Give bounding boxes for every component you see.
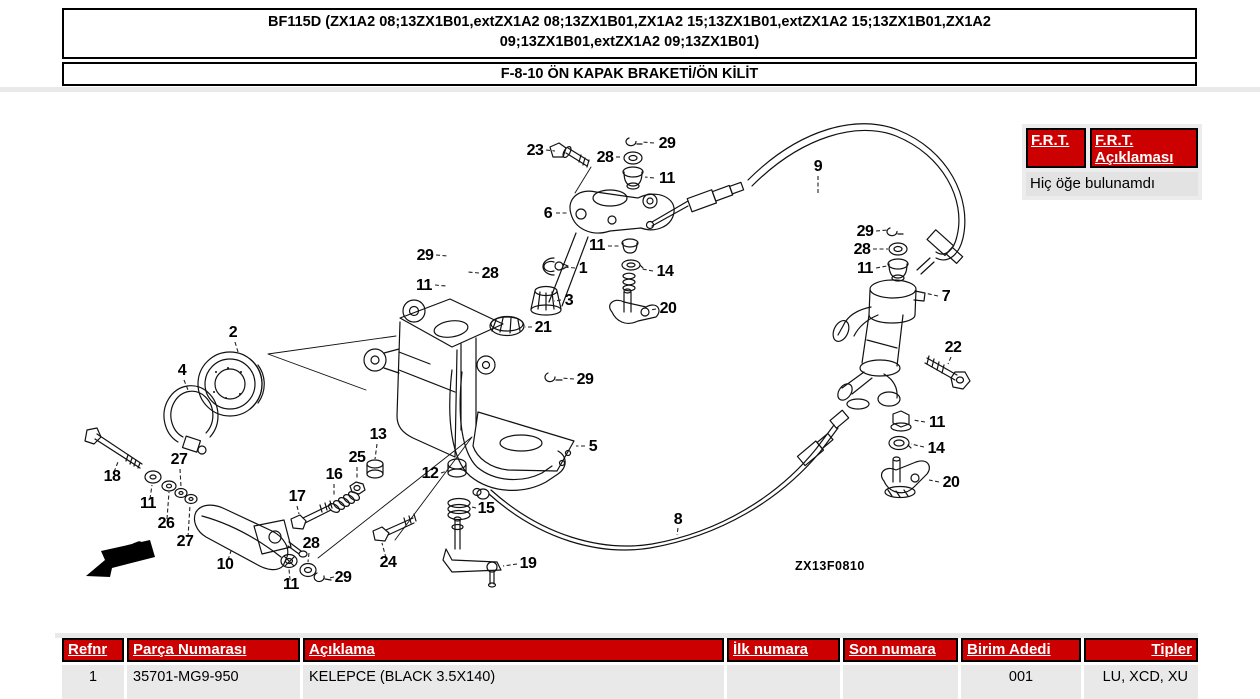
washer-28-right <box>889 243 907 255</box>
part-label-29: 29 <box>659 135 676 152</box>
part-label-29: 29 <box>577 371 594 388</box>
collar-12 <box>448 459 466 477</box>
parts-diagram: FR. ZX13F0810 23282911692928111111432021… <box>0 90 1260 630</box>
handle-10 <box>194 505 307 569</box>
part-label-25: 25 <box>349 449 366 466</box>
part-label-9: 9 <box>814 158 823 175</box>
part-label-20: 20 <box>660 300 677 317</box>
part-label-29: 29 <box>335 569 352 586</box>
bolt-24 <box>373 514 416 541</box>
part-label-4: 4 <box>178 362 187 379</box>
clip-29-center <box>545 373 562 382</box>
part-label-29: 29 <box>417 247 434 264</box>
cap-21 <box>490 317 524 336</box>
part-label-28: 28 <box>854 241 871 258</box>
part-label-5: 5 <box>589 438 598 455</box>
part-label-11: 11 <box>283 576 300 593</box>
grommet-15 <box>448 499 470 520</box>
part-label-14: 14 <box>928 440 945 457</box>
part-label-13: 13 <box>370 426 387 443</box>
part-label-27: 27 <box>171 451 188 468</box>
col-header-part-number[interactable]: Parça Numarası <box>127 638 300 662</box>
part-label-11: 11 <box>589 237 606 254</box>
part-label-28: 28 <box>482 265 499 282</box>
part-label-27: 27 <box>177 533 194 550</box>
part-label-12: 12 <box>422 465 439 482</box>
swivel-bracket-7 <box>830 280 925 409</box>
section-title: F-8-10 ÖN KAPAK BRAKETİ/ÖN KİLİT <box>62 62 1197 86</box>
part-label-2: 2 <box>229 324 238 341</box>
stay-20-right <box>882 457 930 498</box>
lock-cable-8 <box>473 410 849 550</box>
part-label-14: 14 <box>657 263 674 280</box>
col-header-types[interactable]: Tipler <box>1084 638 1198 662</box>
part-label-23: 23 <box>527 142 544 159</box>
section-title-text: F-8-10 ÖN KAPAK BRAKETİ/ÖN KİLİT <box>64 66 1195 83</box>
part-label-17: 17 <box>289 488 306 505</box>
diagram-code: ZX13F0810 <box>795 559 865 573</box>
part-label-28: 28 <box>597 149 614 166</box>
bolt-17 <box>291 501 332 529</box>
part-label-21: 21 <box>535 319 552 336</box>
page-title-line2: 09;13ZX1B01,extZX1A2 09;13ZX1B01) <box>64 33 1195 53</box>
part-label-20: 20 <box>943 474 960 491</box>
page-title-line1: BF115D (ZX1A2 08;13ZX1B01,extZX1A2 08;13… <box>64 13 1195 33</box>
part-label-26: 26 <box>158 515 175 532</box>
part-label-1: 1 <box>579 260 588 277</box>
part-label-8: 8 <box>674 511 683 528</box>
bolt-23 <box>550 143 589 167</box>
page-title: BF115D (ZX1A2 08;13ZX1B01,extZX1A2 08;13… <box>62 8 1197 59</box>
washer-14-mid <box>622 260 643 291</box>
part-label-11: 11 <box>857 260 874 277</box>
part-label-24: 24 <box>380 554 397 571</box>
parts-table: Refnr Parça Numarası Açıklama İlk numara… <box>55 633 1198 699</box>
col-header-refnr[interactable]: Refnr <box>62 638 124 662</box>
bolt-22 <box>925 356 970 389</box>
part-label-11: 11 <box>659 170 676 187</box>
part-label-11: 11 <box>140 495 157 512</box>
part-label-16: 16 <box>326 466 343 483</box>
screw-18 <box>85 428 142 468</box>
clip-29-top <box>626 138 642 146</box>
washer-28-top <box>624 152 642 164</box>
part-label-11: 11 <box>929 414 946 431</box>
part-label-19: 19 <box>520 555 537 572</box>
grommet-3 <box>531 287 561 316</box>
washer-14-right <box>889 437 911 450</box>
col-header-unit-qty[interactable]: Birim Adedi <box>961 638 1081 662</box>
throttle-cable-9 <box>647 124 965 274</box>
part-label-10: 10 <box>217 556 234 573</box>
clip-29-right <box>887 228 903 236</box>
part-label-22: 22 <box>945 339 962 356</box>
stay-20-center <box>610 289 659 323</box>
clamp-ring-4 <box>164 386 218 454</box>
grommet-11-right <box>888 259 908 281</box>
grommet-11-top <box>623 167 643 189</box>
clip-1 <box>543 258 568 275</box>
lock-cylinder-2 <box>198 352 264 416</box>
nut-25 <box>350 482 365 494</box>
lever-19 <box>443 517 501 587</box>
part-label-28: 28 <box>303 535 320 552</box>
part-label-29: 29 <box>857 223 874 240</box>
col-header-description[interactable]: Açıklama <box>303 638 724 662</box>
part-number-labels: 2328291169292811111143202124292811722295… <box>104 135 962 593</box>
part-label-6: 6 <box>544 205 553 222</box>
nut-11-right <box>891 411 911 431</box>
col-header-last-number[interactable]: Son numara <box>843 638 958 662</box>
part-label-15: 15 <box>478 500 495 517</box>
part-label-7: 7 <box>942 288 951 305</box>
part-label-3: 3 <box>565 292 574 309</box>
col-header-first-number[interactable]: İlk numara <box>727 638 840 662</box>
grommet-11-mid <box>622 239 638 253</box>
part-label-18: 18 <box>104 468 121 485</box>
bushing-13 <box>367 460 383 478</box>
part-label-11: 11 <box>416 277 433 294</box>
